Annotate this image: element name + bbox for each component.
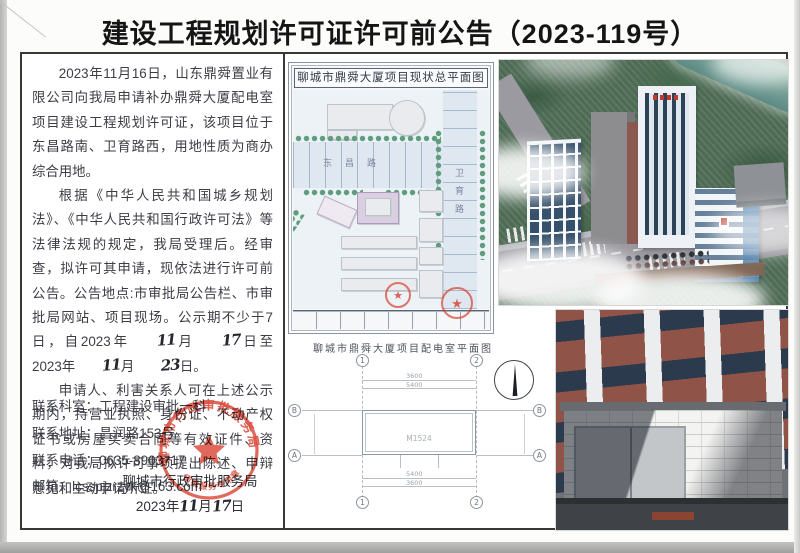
- dim-top-outer: 3600: [406, 372, 423, 380]
- notice-text-column: 2023年11月16日，山东鼎舜置业有限公司向我局申请补办鼎舜大厦配电室项目建设…: [22, 54, 285, 528]
- axis-bubble-1: 1: [356, 354, 369, 367]
- compass-icon: [494, 360, 534, 400]
- road-dongchang-label: 东昌路: [323, 156, 389, 169]
- site-plan-building: [419, 190, 443, 212]
- issuer-name: 聊城市行政审批服务局: [105, 469, 275, 495]
- date-text: 2023年: [136, 499, 180, 514]
- dimension-line: [314, 414, 315, 454]
- handwritten-day-1: 17: [194, 333, 241, 351]
- contact-room: 联系科室：工程建设审批一科: [32, 394, 275, 421]
- building-main-tower: [638, 86, 696, 248]
- axis-line: [476, 366, 477, 498]
- red-seal-icon: ★: [441, 287, 473, 319]
- p2-text: 月: [176, 334, 195, 349]
- dim-top-inner: 5400: [406, 381, 423, 389]
- issuer-block: 聊城市行政审批服务局 2023年11月17日: [105, 469, 275, 520]
- rooftop-sign: [653, 95, 681, 100]
- floor-plan-title: 聊城市鼎舜大厦项目配电室平面图: [288, 340, 518, 355]
- substation-building: [564, 410, 782, 506]
- building-wing: [734, 162, 787, 207]
- site-plan-building: [341, 236, 417, 249]
- content-frame: 2023年11月16日，山东鼎舜置业有限公司向我局申请补办鼎舜大厦配电室项目建设…: [20, 52, 788, 530]
- notice-paragraph-1: 2023年11月16日，山东鼎舜置业有限公司向我局申请补办鼎舜大厦配电室项目建设…: [32, 62, 273, 184]
- trees-row: [295, 135, 441, 142]
- axis-line: [302, 410, 362, 411]
- handwritten-issue-month: 11: [179, 499, 199, 515]
- axis-bubble-a-right: A: [533, 449, 546, 462]
- site-plan-building: [341, 257, 417, 270]
- trees-column: [479, 130, 486, 260]
- site-plan-building: [365, 198, 391, 216]
- scanned-notice-page: 建设工程规划许可证许可前公告（2023-119号） 2023年11月16日，山东…: [0, 0, 800, 553]
- site-plan-building: [419, 270, 443, 298]
- trees-diagonal: [293, 208, 305, 309]
- dim-bottom-inner: 5400: [406, 470, 423, 478]
- site-plan-title: 聊城市鼎舜大厦项目现状总平面图: [294, 68, 488, 88]
- notice-paragraph-2: 根据《中华人民共和国城乡规划法》、《中华人民共和国行政许可法》等法律法规的规定，…: [32, 184, 273, 379]
- site-plan-building: [419, 247, 443, 265]
- axis-line: [476, 410, 534, 411]
- axis-bubble-b-left: B: [288, 404, 301, 417]
- axis-bubble-2: 2: [470, 354, 483, 367]
- scan-edge: [0, 0, 7, 553]
- site-plan-building: [316, 196, 357, 229]
- p2-text: 日。: [180, 359, 207, 374]
- site-plan-round-building: [389, 100, 425, 136]
- site-plan-building: [419, 218, 443, 242]
- axis-bubble-a-left: A: [288, 449, 301, 462]
- floor-plan-drawing: 聊城市鼎舜大厦项目配电室平面图 1 2 3600 5400 B B M1524: [288, 338, 548, 526]
- issue-date: 2023年11月17日: [105, 494, 275, 520]
- door-tick: [400, 455, 401, 468]
- axis-line: [476, 455, 534, 456]
- p2-text: 根据《中华人民共和国城乡规划法》、《中华人民共和国行政许可法》等法律法规的规定，…: [32, 188, 273, 349]
- site-plan-building: [327, 104, 393, 130]
- handwritten-month-2: 11: [75, 357, 122, 375]
- date-text: 日: [231, 499, 245, 514]
- handwritten-day-2: 23: [134, 357, 181, 375]
- substation-room-outline: [362, 410, 476, 455]
- p2-text: 月: [121, 359, 134, 374]
- axis-line: [302, 455, 362, 456]
- axis-bubble-b-right: B: [533, 404, 546, 417]
- axis-bubble-1-bottom: 1: [356, 496, 369, 509]
- page-title: 建设工程规划许可证许可前公告（2023-119号）: [0, 12, 800, 51]
- dim-bottom-outer: 3600: [406, 479, 423, 487]
- scan-edge: [0, 542, 800, 553]
- handwritten-issue-day: 17: [211, 499, 231, 515]
- aerial-render-photo: [499, 60, 788, 305]
- ground-object: [652, 512, 694, 520]
- site-plan-drawing: 聊城市鼎舜大厦项目现状总平面图 东昌路 卫育路: [288, 62, 494, 334]
- site-plan-canvas: 东昌路 卫育路: [293, 90, 489, 309]
- dimension-line: [524, 414, 525, 454]
- red-seal-icon: ★: [385, 282, 411, 308]
- scan-edge: [794, 0, 800, 553]
- date-text: 月: [198, 499, 212, 514]
- trees-row: [303, 189, 363, 196]
- road-weiyu-label: 卫育路: [453, 168, 466, 222]
- door-label: M1524: [362, 434, 476, 443]
- handwritten-month-1: 11: [129, 333, 176, 351]
- axis-bubble-2-bottom: 2: [470, 496, 483, 509]
- door-tick: [438, 455, 439, 468]
- shadow-overlay: [564, 410, 782, 506]
- contact-address: 联系地址：昌润路153号: [32, 421, 275, 448]
- substation-photo: [556, 310, 788, 530]
